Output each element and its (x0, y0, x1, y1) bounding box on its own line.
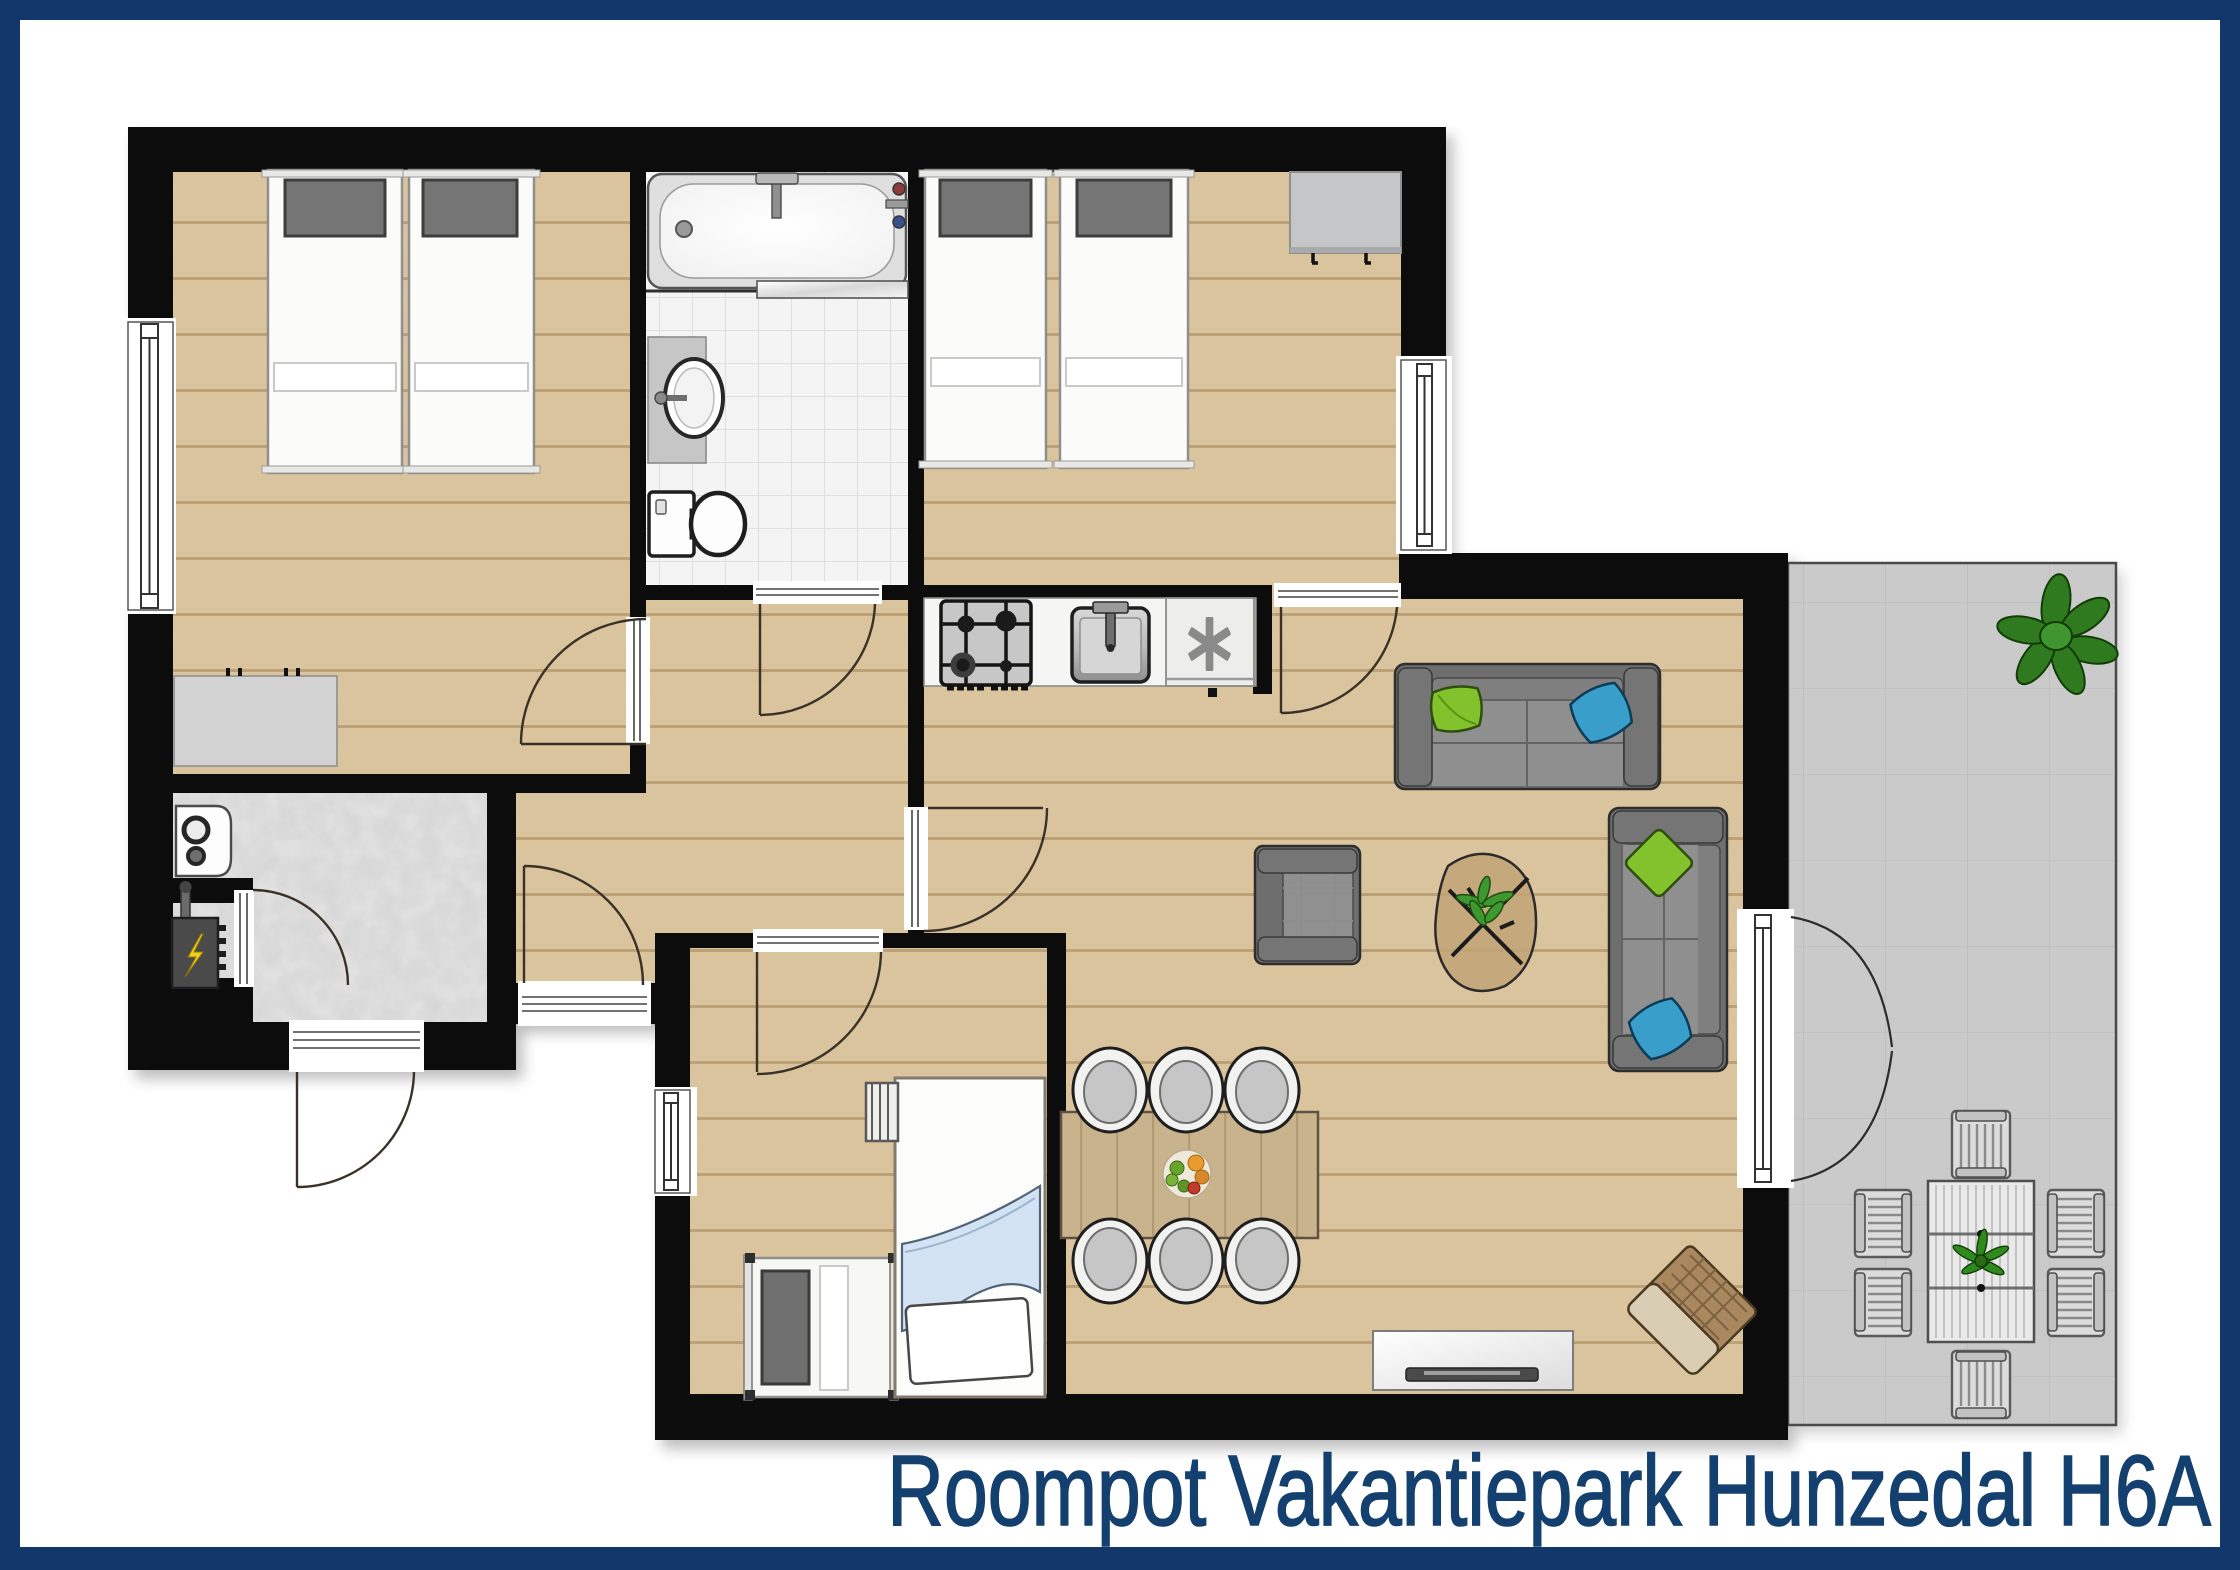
svg-text:Roompot Vakantiepark Hunzedal: Roompot Vakantiepark Hunzedal H6A (887, 1436, 2211, 1547)
